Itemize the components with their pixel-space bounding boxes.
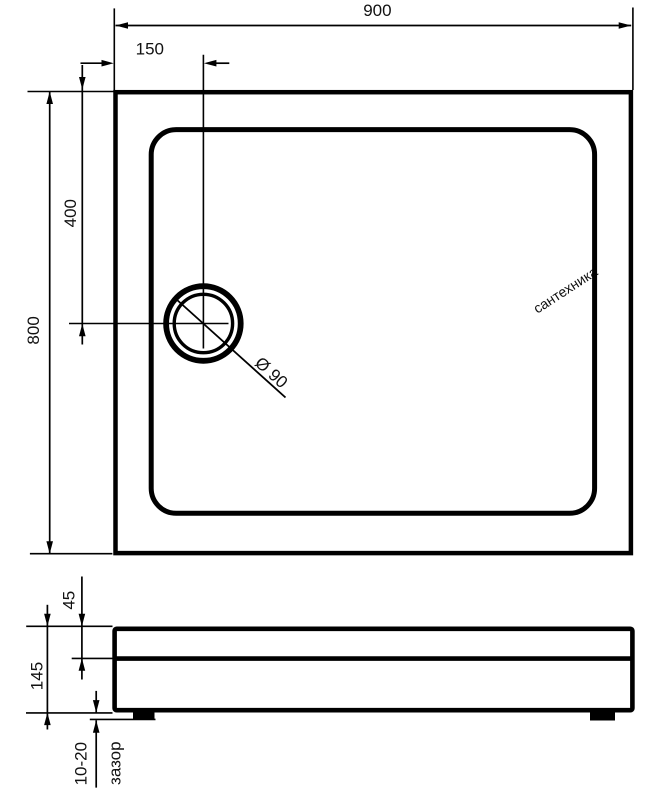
svg-text:150: 150 (136, 40, 164, 59)
svg-text:900: 900 (363, 1, 391, 20)
svg-text:800: 800 (24, 316, 43, 344)
svg-text:400: 400 (61, 199, 80, 227)
svg-text:10-20: 10-20 (72, 742, 91, 785)
svg-text:45: 45 (60, 591, 79, 610)
svg-text:зазор: зазор (106, 741, 125, 785)
svg-text:145: 145 (27, 662, 46, 690)
